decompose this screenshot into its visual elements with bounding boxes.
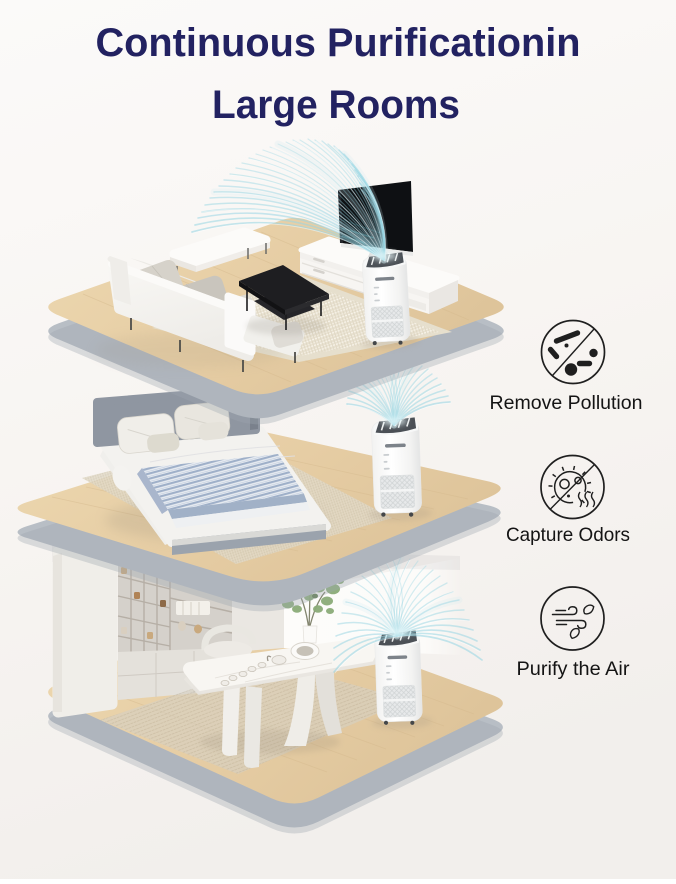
svg-text:Remove Pollution: Remove Pollution [490, 392, 643, 414]
svg-text:Purify the Air: Purify the Air [517, 658, 631, 680]
svg-text:Large Rooms: Large Rooms [212, 83, 460, 127]
svg-text:Continuous Purificationin: Continuous Purificationin [96, 21, 581, 65]
svg-text:Capture Odors: Capture Odors [506, 524, 630, 546]
